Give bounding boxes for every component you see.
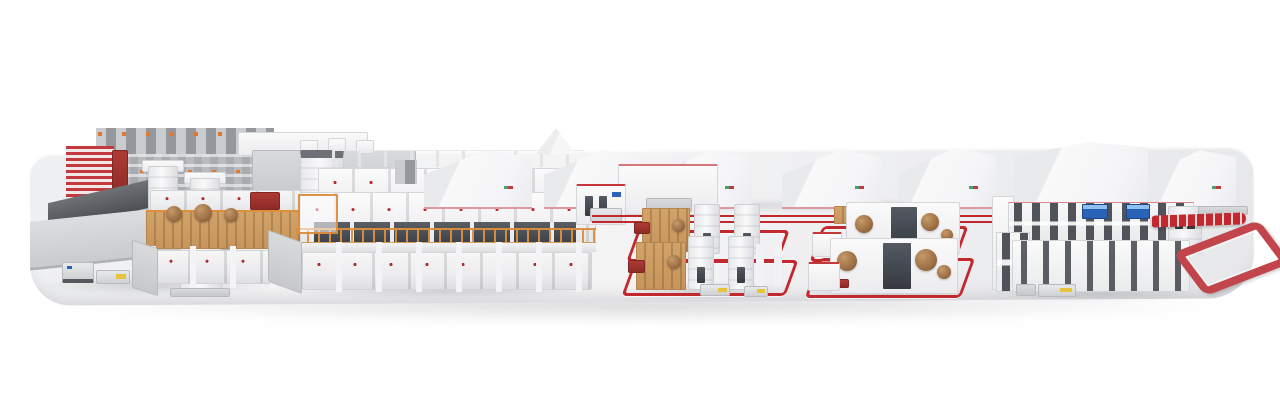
group2-cabinet: [808, 262, 840, 291]
dry-end-small-box: [1016, 284, 1036, 296]
splicer-slot: [697, 267, 705, 283]
roll-shuttle-car: [634, 222, 650, 234]
prep-stairs: [132, 240, 158, 296]
hall-peak-roof: [536, 128, 576, 154]
paper-roll: [837, 251, 857, 271]
paper-roll: [855, 215, 873, 233]
splicer-slot: [737, 267, 745, 283]
cart-yellow-pad: [757, 289, 765, 293]
reel-stand-gap: [883, 243, 911, 289]
dry-end-display-1: [1082, 204, 1108, 219]
guide-posts: [756, 244, 784, 286]
paper-roll: [915, 249, 937, 271]
paper-roll: [194, 204, 212, 222]
cabinet-screen-chip: [612, 192, 621, 197]
hall-logo-chip: [855, 186, 864, 189]
paper-roll: [672, 219, 685, 232]
production-line-render: [0, 0, 1280, 405]
dry-end-display-2: [1126, 204, 1150, 219]
mezzanine-columns: [296, 242, 598, 292]
hall-logo-chip: [1212, 186, 1221, 189]
hall-logo-chip: [504, 186, 513, 189]
paper-roll: [224, 208, 238, 222]
pallet-cart: [700, 284, 730, 296]
splicer-tower: [688, 236, 714, 290]
paper-roll: [166, 206, 182, 222]
cart-yellow-pad: [116, 274, 126, 279]
dry-end-cart: [1038, 284, 1076, 297]
paper-roll: [667, 255, 681, 269]
cart-yellow-pad: [718, 288, 727, 292]
splicer-tower: [728, 236, 754, 290]
hall-logo-chip: [725, 186, 734, 189]
roll-transport-agv: [62, 262, 94, 283]
single-facer-1: [250, 192, 280, 210]
orange-service-frame: [298, 194, 338, 234]
reel-stand-front-unit: [830, 238, 958, 294]
paper-roll: [921, 213, 939, 231]
stepped-block: [395, 160, 417, 184]
roll-shuttle-car: [628, 260, 645, 273]
agv-status-light: [67, 266, 72, 269]
cart-yellow-pad: [1060, 288, 1072, 292]
paper-roll: [937, 265, 951, 279]
roll-transport-cart: [96, 270, 130, 284]
hall-logo-chip: [969, 186, 978, 189]
pallet-cart: [744, 286, 768, 297]
gantry-base: [170, 288, 230, 297]
